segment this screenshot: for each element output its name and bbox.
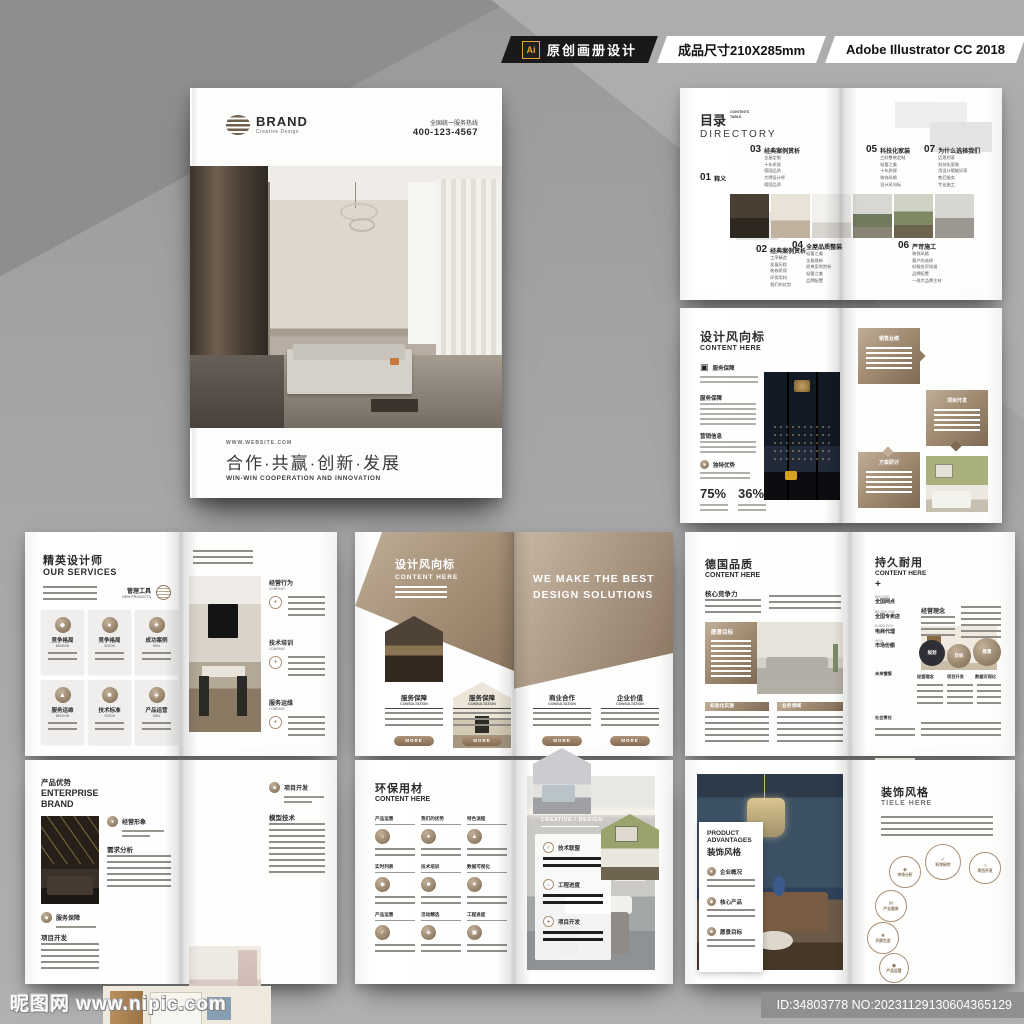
toc-item-01: 01 释义 (700, 172, 726, 183)
quality-bar-2: 业务领域 (777, 702, 843, 711)
text-lines (193, 550, 253, 566)
toc-title-tag: CONTENTS TABLE (730, 110, 760, 129)
spread-solutions: 设计风向标 CONTENT HERE WE MAKE THE BEST DESI… (355, 532, 673, 756)
text-lines (453, 712, 511, 729)
toc-num: 01 (700, 172, 711, 183)
solutions-col-1: 服务保障 CONSULTATION MORE (385, 692, 443, 747)
text-lines (777, 716, 843, 744)
core-product-icon: ◆ (707, 897, 716, 906)
panel-item-label: 项目开发 (558, 918, 580, 926)
services-subtitle: OUR SERVICES (43, 567, 117, 577)
wind-title: 设计风向标 (700, 328, 765, 345)
service-card-3: ★ 成功案例 IDEA (135, 610, 178, 674)
brand-name: BRAND (256, 114, 308, 129)
enterprise-item1-row: ● 经营形象 (107, 816, 146, 827)
text-lines (41, 943, 99, 969)
panel-item-row: ✓ 技术联盟 (543, 842, 603, 853)
toc-sub: 大牌设计师 (764, 175, 800, 182)
wind-stat-1: 75% (700, 486, 726, 501)
text-lines (467, 896, 507, 906)
stat-label: 全国专卖店 (875, 614, 900, 621)
style-circle-market: ◈ 市场分析 (889, 856, 921, 888)
panel-item-label: 核心产品 (720, 898, 742, 906)
toc-photo-2 (771, 194, 810, 238)
image-icon: ● (107, 816, 118, 827)
panel-item-row: ● 企业概况 (707, 867, 755, 876)
watermark-id-box: ID:34803778 NO:20231129130604365129 (761, 992, 1024, 1018)
card-en: MISSION (41, 644, 84, 648)
style-circle-ecology: ★ 开辟生态 (867, 922, 899, 954)
solutions-col-2: 服务保障 CONSULTATION MORE (453, 692, 511, 747)
cover-slogan-en: WIN-WIN COOPERATION AND INNOVATION (226, 475, 381, 482)
rule-line (284, 796, 324, 798)
stat-label: 电商代理 (875, 629, 900, 636)
toc-item-04: 04 全屋品质整装 轻奢之美 全屋焕新 经典案例赏析 轻奢之美 品牌配置 (792, 240, 842, 285)
text-lines (95, 652, 124, 662)
eco-cell-4: 实时列表 ◆ (375, 864, 415, 906)
bar-label: 标准化实施 (705, 702, 769, 711)
photo-sofa-back (293, 344, 405, 360)
panel-item-row: ● 项目开发 (543, 916, 603, 927)
plus-icon: + (269, 596, 282, 609)
watermark-site-url: www.nipic.com (76, 994, 227, 1015)
enterprise-item5-row: ■ 项目开发 (269, 782, 308, 793)
software-badge-label: Adobe Illustrator CC 2018 (846, 42, 1005, 57)
photo-window (408, 182, 436, 344)
size-badge-label: 成品尺寸210X285mm (678, 40, 805, 59)
style-title: 装饰风格 (881, 784, 929, 800)
toc-num: 07 (924, 144, 935, 155)
eco-title: 环保用材 (375, 780, 423, 796)
section-en: COMPANY (269, 587, 325, 591)
toc-sublist: 迈恩到家 科技化家装 用设计赋能好家 售后服务 专业施工 (938, 155, 980, 189)
text-lines (288, 596, 325, 618)
wind-box3-label: 方案研讨 (858, 459, 920, 466)
service-card-4: ▲ 服务运维 MISSION (41, 680, 84, 744)
toc-sub: 德国品质 (764, 182, 800, 189)
toc-label: 全屋品质整装 (806, 242, 842, 251)
services-photo-dining (189, 576, 261, 732)
col-label: 企业价值 (601, 692, 659, 702)
ops-icon: ▲ (55, 687, 71, 703)
item-label: 模型技术 (269, 812, 295, 822)
ops-icon: ✓ (375, 925, 390, 940)
text-lines (700, 504, 728, 514)
yellow-accent (785, 471, 797, 480)
text-lines (467, 848, 507, 858)
card-en: VISION (88, 714, 131, 718)
text-lines (421, 848, 461, 858)
text-lines-white (934, 409, 980, 433)
wind-box-scheme: 方案研讨 (858, 452, 920, 508)
toc-label: 严苛施工 (912, 242, 941, 251)
enterprise-photo-dark-bedroom (41, 816, 99, 904)
style-circle-operation: ◆ 产品运营 (879, 953, 909, 983)
vision-icon: ● (102, 617, 118, 633)
warm-lamp (794, 380, 810, 392)
wind-sec1-row: ▣ 服务保障 (700, 362, 735, 373)
eco-cell-label: 工程进度 (467, 912, 507, 921)
cover-hotline: 全国统一服务热线 400-123-4567 (413, 118, 478, 138)
toc-photo-3 (812, 194, 851, 238)
plus-icon: + (269, 656, 282, 669)
toc-item-07: 07 为什么选择我们 迈恩到家 科技化家装 用设计赋能好家 售后服务 专业施工 (924, 144, 980, 189)
spread-enterprise: 产品优势 ENTERPRISE BRAND ● 经营形象 需求分析 ◆ 服务保障… (25, 760, 337, 984)
solutions-headline: WE MAKE THE BEST DESIGN SOLUTIONS (533, 572, 655, 604)
text-lines (385, 712, 443, 729)
eco-cell-6: 数据可视化 ★ (467, 864, 507, 906)
circle-label: 产品运营 (886, 969, 901, 974)
photo-wood-wall (190, 166, 268, 355)
eco-subtitle: CONTENT HERE (375, 796, 430, 803)
brand-globe-icon (226, 115, 250, 135)
solutions-col-3: 商业合作 CONSULTATION MORE (533, 692, 591, 747)
toc-title-block: 目录 CONTENTS TABLE (700, 110, 760, 129)
photo-pendant-ring-2 (349, 218, 375, 232)
panel-en-2: ADVANTAGES (707, 837, 755, 844)
text-lines (700, 376, 758, 384)
eco-overlay-panel: ✓ 技术联盟 ⌂ 工程进度 ● 项目开发 (535, 834, 611, 960)
bed (47, 876, 93, 895)
item-label: 项目开发 (284, 783, 308, 792)
photo-orange-pillow (390, 358, 399, 365)
service-card-1: ◆ 竞争格局 MISSION (41, 610, 84, 674)
project-icon: ■ (269, 782, 280, 793)
future-caption: 未来憧憬 (875, 671, 892, 677)
solutions-subtitle: CONTENT HERE (395, 574, 458, 581)
toc-label: 经典案例赏析 (764, 146, 800, 155)
text-lines (700, 441, 756, 455)
text-lines-black (543, 931, 603, 943)
progress-icon: ⌂ (543, 879, 554, 890)
toc-sub: 设计风向标 (880, 182, 910, 189)
circle-label-2: 项目开发 (947, 674, 964, 680)
toc-sub: 装饰风格 (880, 175, 910, 182)
durable-title: 持久耐用 (875, 554, 923, 570)
toc-num: 06 (898, 240, 909, 251)
toc-sublist: 全屋定制 十年质保 德国品质 大牌设计师 德国品质 (764, 155, 800, 189)
col-en: CONSULTATION (385, 702, 443, 706)
text-lines (142, 652, 171, 662)
eco-cell-3: 特色流程 ▲ (467, 816, 507, 858)
panel-item-label: 愿景目标 (720, 928, 742, 936)
hotline-label: 全国统一服务热线 (413, 118, 478, 127)
eco-photo-subtitle: CREATIVE / DESIGN (541, 817, 603, 823)
toc-num: 02 (756, 244, 767, 255)
cover-slogan: 合作·共赢·创新·发展 (226, 449, 401, 474)
text-lines (601, 712, 659, 729)
eco-cell-label: 活动精选 (421, 912, 461, 921)
spread-quality: 德国品质 CONTENT HERE 核心竞争力 愿景目标 标准化实施 业务领域 … (685, 532, 1015, 756)
bubble-notch (950, 440, 961, 451)
watermark-site-name: 昵图网 (10, 994, 70, 1015)
poster-stage: Ai 原创画册设计 成品尺寸210X285mm Adobe Illustrato… (0, 0, 1024, 1024)
vision-icon: ■ (707, 927, 716, 936)
spread-wind: 设计风向标 CONTENT HERE ▣ 服务保障 服务保障 营销信息 ● 独特… (680, 308, 1002, 523)
product-badges: Ai 原创画册设计 成品尺寸210X285mm Adobe Illustrato… (506, 36, 1021, 63)
hotline-number: 400-123-4567 (413, 127, 478, 138)
toc-item-05: 05 科技化家装 三好整装定制 轻奢之美 十年质保 装饰风格 设计风向标 (866, 144, 910, 189)
spread-toc: 目录 CONTENTS TABLE DIRECTORY 01 释义 03 经典案… (680, 88, 1002, 300)
card-label: 成功案例 (135, 636, 178, 644)
wind-box1-label: 销售业绩 (858, 335, 920, 342)
tool-sub: NEW PRODUCTS (111, 595, 151, 599)
eco-cell-2: 我们的优势 ● (421, 816, 461, 858)
medal-icon: ● (700, 460, 709, 469)
plant (833, 644, 838, 673)
text-lines (738, 504, 766, 514)
col-en: CONSULTATION (533, 702, 591, 706)
watermark-site: 昵图网 www.nipic.com (10, 989, 227, 1016)
col-label: 服务保障 (385, 692, 443, 702)
service-card-2: ● 竞争格局 VISION (88, 610, 131, 674)
card-label: 竞争格局 (88, 636, 131, 644)
quality-core-label: 核心竞争力 (705, 588, 738, 598)
card-en: IDEA (135, 644, 178, 648)
services-section-3: 服务运维 COMPANY + (269, 698, 325, 738)
text-lines (961, 606, 1001, 638)
enterprise-title-cn: 产品优势 (41, 778, 99, 788)
house-photo-gray-bedroom (533, 748, 591, 814)
panel-item-label: 工程进度 (558, 881, 580, 889)
wall-art (935, 464, 953, 478)
plus-mark: + (875, 579, 881, 590)
grid-icon: ▣ (700, 362, 709, 373)
text-lines (421, 944, 461, 954)
services-title: 精英设计师 (43, 552, 103, 568)
wind-box2-label: 项目开发 (926, 397, 988, 404)
globe-icon (156, 585, 171, 600)
circle-label: 项目开发 (977, 869, 992, 874)
ai-badge-label: 原创画册设计 (547, 40, 637, 59)
toc-num: 03 (750, 144, 761, 155)
shield-icon: ◆ (41, 912, 52, 923)
stat-label: 市场份额 (875, 643, 900, 650)
toc-title: 目录 (700, 110, 726, 129)
progress-icon: ▣ (467, 925, 482, 940)
vision-box-label: 愿景目标 (711, 628, 757, 636)
toc-sub: 迈恩到家 (938, 155, 980, 162)
gold-lines (41, 816, 99, 864)
item-label: 需求分析 (107, 844, 133, 854)
photo-wall-edge (268, 182, 270, 355)
text-lines-white (395, 586, 447, 598)
toc-sub: 全屋定制 (764, 155, 800, 162)
style-circle-research: ✓ 科学研究 (925, 844, 961, 880)
wind-photo-green-bedroom (926, 456, 988, 512)
quality-photo-sofa (757, 622, 843, 694)
photo-floor-dark (190, 355, 284, 428)
card-en: MISSION (41, 714, 84, 718)
enterprise-title-en2: BRAND (41, 799, 99, 811)
more-button: MORE (542, 736, 582, 746)
tool-label: 管理工具 (111, 586, 151, 595)
wind-sec1-label: 服务保障 (713, 364, 735, 372)
toc-sublist: 装饰风格 客户的选择 好服务早知道 品牌配置 一线大品牌主材 (912, 251, 941, 285)
solutions-col-4: 企业价值 CONSULTATION MORE (601, 692, 659, 747)
col-label: 服务保障 (453, 692, 511, 702)
section-label: 经营行为 (269, 578, 325, 587)
style-circle-industry: ✉ 产业服务 (875, 890, 907, 922)
chair (237, 676, 247, 717)
mission-icon: ◆ (55, 617, 71, 633)
solutions-title: 设计风向标 (395, 556, 458, 572)
toc-sub: 三好整装定制 (880, 155, 910, 162)
toc-photo-5 (894, 194, 933, 238)
advantage-icon: ● (421, 829, 436, 844)
durable-subtitle: CONTENT HERE (875, 570, 926, 577)
circle-label: 开辟生态 (875, 939, 890, 944)
company-icon: ● (707, 867, 716, 876)
text-lines (48, 722, 77, 732)
section-en: COMPANY (269, 707, 325, 711)
toc-photo-1 (730, 194, 769, 238)
divider (533, 708, 591, 709)
rule-line (284, 801, 312, 803)
text-lines (142, 722, 171, 732)
toc-sublist: 三好整装定制 轻奢之美 十年质保 装饰风格 设计风向标 (880, 155, 910, 189)
toc-photo-strip (730, 194, 974, 238)
text-lines-black (543, 857, 603, 869)
col-label: 商业合作 (533, 692, 591, 702)
text-lines-white (866, 347, 912, 371)
panel-en-1: PRODUCT (707, 830, 755, 837)
text-lines (107, 855, 171, 887)
headline-line-2: DESIGN SOLUTIONS (533, 588, 655, 604)
panel-item-row: ◆ 核心产品 (707, 897, 755, 906)
text-lines (921, 616, 955, 638)
card-label: 竞争格局 (41, 636, 84, 644)
text-lines (421, 896, 461, 906)
brochure-cover: BRAND Creative Design 全国统一服务热线 400-123-4… (190, 88, 502, 498)
enterprise-title-block: 产品优势 ENTERPRISE BRAND (41, 778, 99, 811)
toc-sub: 装饰风格 (912, 251, 941, 258)
wind-box-sales: 销售业绩 (858, 328, 920, 384)
stat-label: 全国网点 (875, 599, 900, 606)
item-label: 经营形象 (122, 817, 146, 826)
circle-label: 科学研究 (935, 863, 950, 868)
wind-sec2-label: 服务保障 (700, 394, 722, 402)
text-lines (43, 586, 97, 602)
eco-cell-label: 产品运营 (375, 912, 415, 921)
toc-label: 科技化家装 (880, 146, 910, 155)
toc-subtitle: DIRECTORY (700, 129, 777, 140)
training-icon: ■ (421, 877, 436, 892)
toc-sub: 专业施工 (938, 182, 980, 189)
eco-cell-label: 数据可视化 (467, 864, 507, 873)
quality-title: 德国品质 (705, 556, 753, 572)
toc-sub: 轻奢之美 (806, 251, 842, 258)
spread-style: PRODUCT ADVANTAGES 装饰风格 ● 企业概况 ◆ 核心产品 ■ … (685, 760, 1015, 984)
col-en: CONSULTATION (453, 702, 511, 706)
tv-screen (208, 604, 238, 638)
text-lines (705, 599, 761, 613)
headline-line-1: WE MAKE THE BEST (533, 572, 655, 588)
cover-photo-living-room (190, 166, 502, 428)
eco-cell-7: 产品运营 ✓ (375, 912, 415, 954)
solutions-title-block: 设计风向标 CONTENT HERE (395, 556, 458, 598)
develop-icon: ● (543, 916, 554, 927)
bar-label: 业务领域 (777, 702, 843, 711)
bubble-notch (882, 446, 893, 457)
eco-cell-label: 产品运营 (375, 816, 415, 825)
col-en: CONSULTATION (601, 702, 659, 706)
circle-goal: 目标 (947, 644, 971, 668)
chair (199, 676, 209, 717)
text-lines (375, 944, 415, 954)
text-lines (700, 472, 750, 482)
panel-item-row: ■ 愿景目标 (707, 927, 755, 936)
product-icon: ⌂ (375, 829, 390, 844)
toc-photo-4 (853, 194, 892, 238)
photo-coffee-table (371, 399, 418, 412)
text-lines-white (866, 471, 912, 495)
list-icon: ◆ (375, 877, 390, 892)
text-lines (917, 684, 943, 704)
bubble-notch (914, 350, 925, 361)
toc-num: 05 (866, 144, 877, 155)
eco-cell-9: 工程进度 ▣ (467, 912, 507, 954)
card-label: 产品运营 (135, 706, 178, 714)
wall-art (615, 826, 638, 843)
process-icon: ▲ (467, 829, 482, 844)
text-lines (769, 595, 841, 613)
watermark-id-text: ID:34803778 NO:20231129130604365129 (777, 998, 1012, 1012)
text-lines (875, 728, 915, 738)
item-label: 服务保障 (56, 913, 80, 922)
eco-cell-label: 特色流程 (467, 816, 507, 825)
quality-vision-box: 愿景目标 (705, 622, 757, 684)
card-en: VISION (88, 644, 131, 648)
text-lines (947, 684, 973, 704)
services-section-2: 技术培训 COMPANY + (269, 638, 325, 678)
style-subtitle: TIELE HERE (881, 800, 932, 807)
toc-sub: 品牌配置 (912, 271, 941, 278)
brand-logo: BRAND Creative Design (226, 114, 308, 135)
circle-label-1: 经营理念 (917, 674, 934, 680)
ai-icon: Ai (522, 41, 540, 59)
panel-cn: 装饰风格 (707, 846, 755, 858)
text-lines (533, 712, 591, 729)
style-circle-develop: ⌂ 项目开发 (969, 852, 1001, 884)
philosophy-label: 经营理念 (921, 606, 945, 615)
toc-num: 04 (792, 240, 803, 251)
panel-item-row: ⌂ 工程进度 (543, 879, 603, 890)
text-lines (707, 909, 755, 919)
circle-label-3: 数据可视化 (975, 674, 996, 680)
divider (385, 708, 443, 709)
style-left-panel: PRODUCT ADVANTAGES 装饰风格 ● 企业概况 ◆ 核心产品 ■ … (699, 822, 763, 972)
size-badge: 成品尺寸210X285mm (657, 36, 826, 63)
photo-curtain (436, 179, 502, 355)
toc-sub: 轻奢之美 (806, 271, 842, 278)
quality-bar-1: 标准化实施 (705, 702, 769, 711)
quality-stats: 800,000 全国网点 86,000,000 全国专卖店 5,800,000 … (875, 594, 900, 653)
toc-item-03: 03 经典案例赏析 全屋定制 十年质保 德国品质 大牌设计师 德国品质 (750, 144, 800, 189)
toc-sub: 一线大品牌主材 (912, 278, 941, 285)
wind-sec3-label: 营销信息 (700, 432, 722, 440)
text-lines (707, 939, 755, 949)
activity-icon: ◈ (421, 925, 436, 940)
circle-label: 产业服务 (883, 907, 898, 912)
panel-item-label: 技术联盟 (558, 844, 580, 852)
text-lines (375, 896, 415, 906)
text-lines (288, 656, 325, 678)
section-label: 服务运维 (269, 698, 325, 707)
toc-photo-6 (935, 194, 974, 238)
toc-label: 为什么选择我们 (938, 146, 980, 155)
alliance-icon: ✓ (543, 842, 554, 853)
